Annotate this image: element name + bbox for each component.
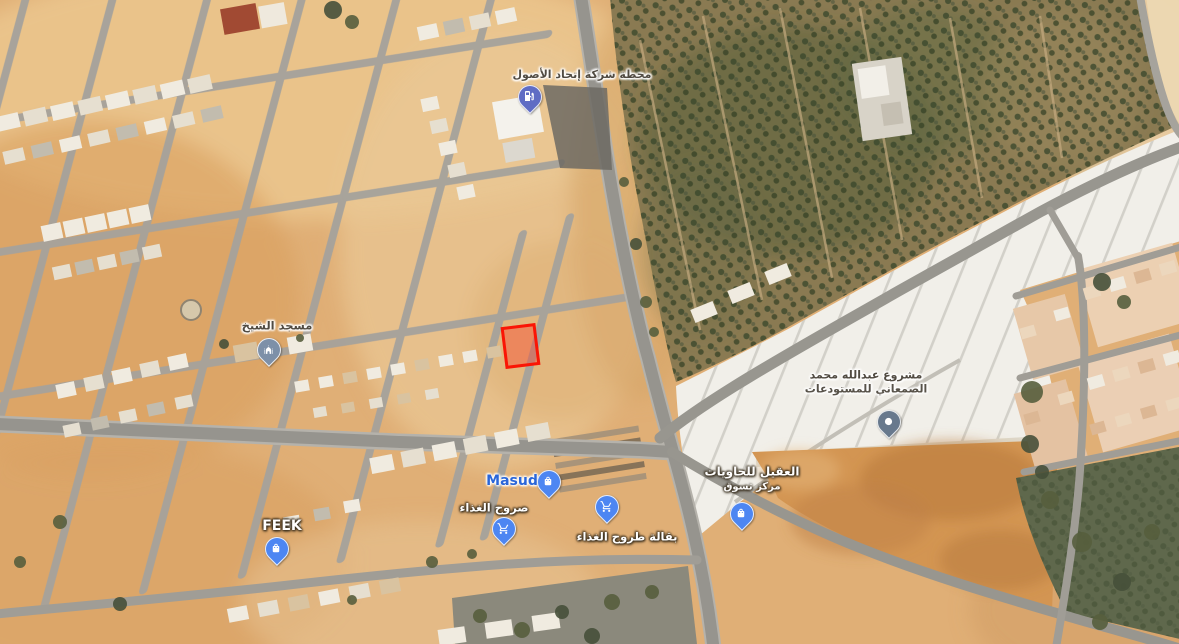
shopping-cart-icon	[595, 495, 617, 517]
feek-label[interactable]: FEEK	[262, 517, 302, 535]
fuel-station-label[interactable]: محطة شركة إتحاد الأصول	[513, 68, 652, 82]
al-aqeel-containers-label-text: العقيل للحاويات	[705, 465, 800, 481]
satellite-basemap	[0, 0, 1179, 644]
fuel-pump-icon	[518, 85, 540, 107]
mosque-alshaikh-label-text: مسجد الشيخ	[242, 319, 313, 334]
al-aqeel-containers-label[interactable]: العقيل للحاوياتمركز تسوق	[705, 465, 800, 494]
baqala-torouh-alghithaa-label-text: بقالة طروح الغذاء	[577, 530, 678, 545]
fuel-station-label-text: محطة شركة إتحاد الأصول	[513, 68, 652, 82]
shopping-bag-icon	[265, 537, 287, 559]
mosque-alshaikh-label[interactable]: مسجد الشيخ	[242, 319, 313, 334]
abdullah-alsamaani-warehouses-project-label-text: مشروع عبدالله محمد	[805, 369, 927, 383]
masud-label[interactable]: Masud	[486, 472, 538, 490]
abdullah-alsamaani-warehouses-project-sublabel-text: الصمعاني للمستودعات	[805, 383, 927, 397]
masud-label-text: Masud	[486, 472, 538, 490]
sorouh-alghithaa-label[interactable]: صروح الغذاء	[460, 501, 529, 516]
sorouh-alghithaa-label-text: صروح الغذاء	[460, 501, 529, 516]
baqala-torouh-alghithaa-label[interactable]: بقالة طروح الغذاء	[577, 530, 678, 545]
shopping-bag-icon	[730, 502, 752, 524]
mosque-icon	[257, 338, 279, 360]
abdullah-alsamaani-warehouses-project-label[interactable]: مشروع عبدالله محمدالصمعاني للمستودعات	[805, 369, 927, 398]
al-aqeel-containers-sublabel-text: مركز تسوق	[705, 480, 800, 493]
shopping-bag-icon	[537, 470, 559, 492]
shopping-cart-icon	[492, 517, 514, 539]
feek-label-text: FEEK	[262, 517, 302, 535]
satellite-map-view[interactable]: محطة شركة إتحاد الأصولمسجد الشيخMasudFEE…	[0, 0, 1179, 644]
place-dot-icon	[877, 410, 899, 432]
selected-parcel-highlight[interactable]	[501, 323, 541, 369]
